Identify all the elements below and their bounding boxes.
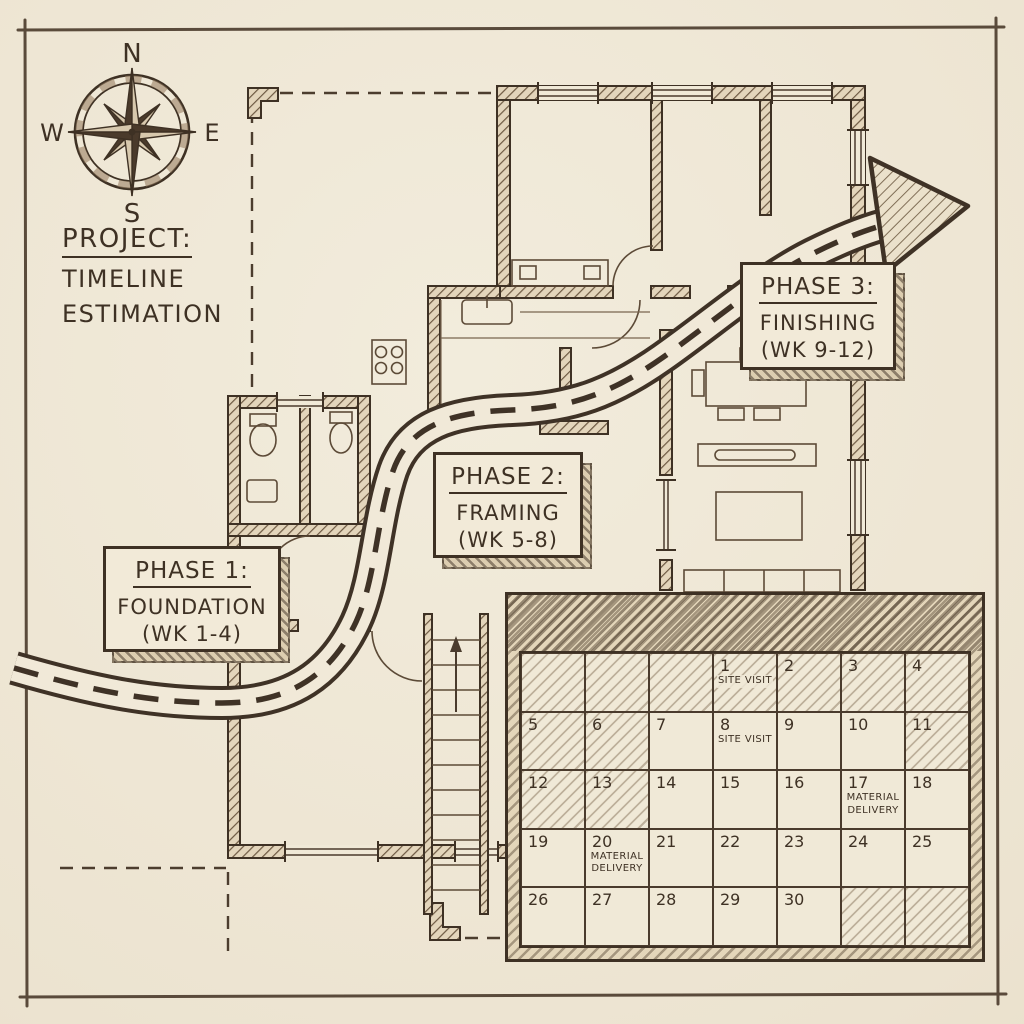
bathroom-sink (247, 480, 277, 502)
day-number: 15 (720, 773, 776, 792)
day-number: 11 (912, 715, 968, 734)
day-number: 12 (528, 773, 584, 792)
phase-3-name: FINISHING (743, 311, 893, 335)
project-title-line2: TIMELINE (62, 265, 223, 293)
calendar-day-23: 23 (777, 829, 841, 888)
calendar-day-29: 29 (713, 887, 777, 946)
calendar-day-5: 5 (521, 712, 585, 771)
day-number: 27 (592, 890, 648, 909)
phase-1-box: PHASE 1: FOUNDATION (WK 1-4) (103, 546, 281, 652)
calendar-day-2: 2 (777, 653, 841, 712)
day-number: 8 (720, 715, 776, 734)
day-number: 17 (848, 773, 904, 792)
toilet-bowl (250, 424, 276, 456)
calendar-event-label: SITE VISIT (717, 734, 773, 747)
calendar-empty-cell (521, 653, 585, 712)
calendar-day-20: 20MATERIAL DELIVERY (585, 829, 649, 888)
day-number: 23 (784, 832, 840, 851)
calendar-day-25: 25 (905, 829, 969, 888)
phase-1-weeks: (WK 1-4) (106, 622, 278, 646)
calendar-day-26: 26 (521, 887, 585, 946)
blueprint-sketch-page: N S W E PROJECT: TIMELINE ESTIMATION PHA… (0, 0, 1024, 1024)
calendar-header-band (508, 595, 982, 651)
day-number: 25 (912, 832, 968, 851)
compass-west-label: W (40, 119, 64, 147)
calendar-day-6: 6 (585, 712, 649, 771)
calendar-day-22: 22 (713, 829, 777, 888)
calendar-day-18: 18 (905, 770, 969, 829)
project-title: PROJECT: TIMELINE ESTIMATION (62, 224, 223, 328)
phase-2-box: PHASE 2: FRAMING (WK 5-8) (433, 452, 583, 558)
day-number: 5 (528, 715, 584, 734)
calendar-day-16: 16 (777, 770, 841, 829)
arrow-right-icon (870, 158, 968, 272)
day-number: 10 (848, 715, 904, 734)
day-number: 24 (848, 832, 904, 851)
stove (372, 340, 406, 384)
day-number: 2 (784, 656, 840, 675)
calendar-day-11: 11 (905, 712, 969, 771)
project-title-line3: ESTIMATION (62, 300, 223, 328)
calendar-empty-cell (585, 653, 649, 712)
phase-2-heading: PHASE 2: (449, 464, 567, 494)
day-number: 4 (912, 656, 968, 675)
day-number: 3 (848, 656, 904, 675)
day-number: 22 (720, 832, 776, 851)
calendar-day-8: 8SITE VISIT (713, 712, 777, 771)
calendar-day-10: 10 (841, 712, 905, 771)
calendar-day-17: 17MATERIAL DELIVERY (841, 770, 905, 829)
day-number: 1 (720, 656, 776, 675)
phase-1-heading: PHASE 1: (133, 558, 251, 588)
calendar-day-27: 27 (585, 887, 649, 946)
day-number: 7 (656, 715, 712, 734)
phase-2-name: FRAMING (436, 501, 580, 525)
calendar-day-19: 19 (521, 829, 585, 888)
day-number: 9 (784, 715, 840, 734)
staircase (424, 614, 488, 914)
phase-3-heading: PHASE 3: (759, 274, 877, 304)
calendar-grid: 1SITE VISIT2345678SITE VISIT910111213141… (519, 651, 971, 948)
compass-north-label: N (122, 39, 141, 69)
corner-marker-bottom (430, 903, 460, 940)
phase-3-box: PHASE 3: FINISHING (WK 9-12) (740, 262, 896, 370)
day-number: 29 (720, 890, 776, 909)
compass-rose: N S W E (40, 39, 219, 229)
project-title-label: PROJECT: (62, 224, 192, 258)
coffee-table (716, 492, 802, 540)
calendar-day-15: 15 (713, 770, 777, 829)
phase-1-name: FOUNDATION (106, 595, 278, 619)
calendar-day-7: 7 (649, 712, 713, 771)
calendar-day-9: 9 (777, 712, 841, 771)
calendar-day-3: 3 (841, 653, 905, 712)
calendar-day-24: 24 (841, 829, 905, 888)
calendar-empty-cell (649, 653, 713, 712)
phase-2-weeks: (WK 5-8) (436, 528, 580, 552)
calendar-day-12: 12 (521, 770, 585, 829)
calendar-day-13: 13 (585, 770, 649, 829)
calendar-day-14: 14 (649, 770, 713, 829)
corner-marker-top (248, 88, 278, 118)
calendar-event-label: MATERIAL DELIVERY (845, 792, 901, 817)
day-number: 19 (528, 832, 584, 851)
construction-calendar: 1SITE VISIT2345678SITE VISIT910111213141… (505, 592, 985, 962)
calendar-empty-cell (905, 887, 969, 946)
day-number: 18 (912, 773, 968, 792)
calendar-empty-cell (841, 887, 905, 946)
calendar-event-label: MATERIAL DELIVERY (589, 851, 645, 876)
phase-3-weeks: (WK 9-12) (743, 338, 893, 362)
calendar-day-30: 30 (777, 887, 841, 946)
dresser (512, 260, 608, 286)
day-number: 28 (656, 890, 712, 909)
day-number: 14 (656, 773, 712, 792)
calendar-day-21: 21 (649, 829, 713, 888)
sofa (684, 570, 840, 592)
day-number: 20 (592, 832, 648, 851)
day-number: 21 (656, 832, 712, 851)
day-number: 16 (784, 773, 840, 792)
compass-east-label: E (204, 119, 219, 147)
calendar-day-4: 4 (905, 653, 969, 712)
day-number: 26 (528, 890, 584, 909)
calendar-day-1: 1SITE VISIT (713, 653, 777, 712)
calendar-day-28: 28 (649, 887, 713, 946)
day-number: 13 (592, 773, 648, 792)
calendar-event-label: SITE VISIT (717, 675, 773, 688)
day-number: 30 (784, 890, 840, 909)
day-number: 6 (592, 715, 648, 734)
